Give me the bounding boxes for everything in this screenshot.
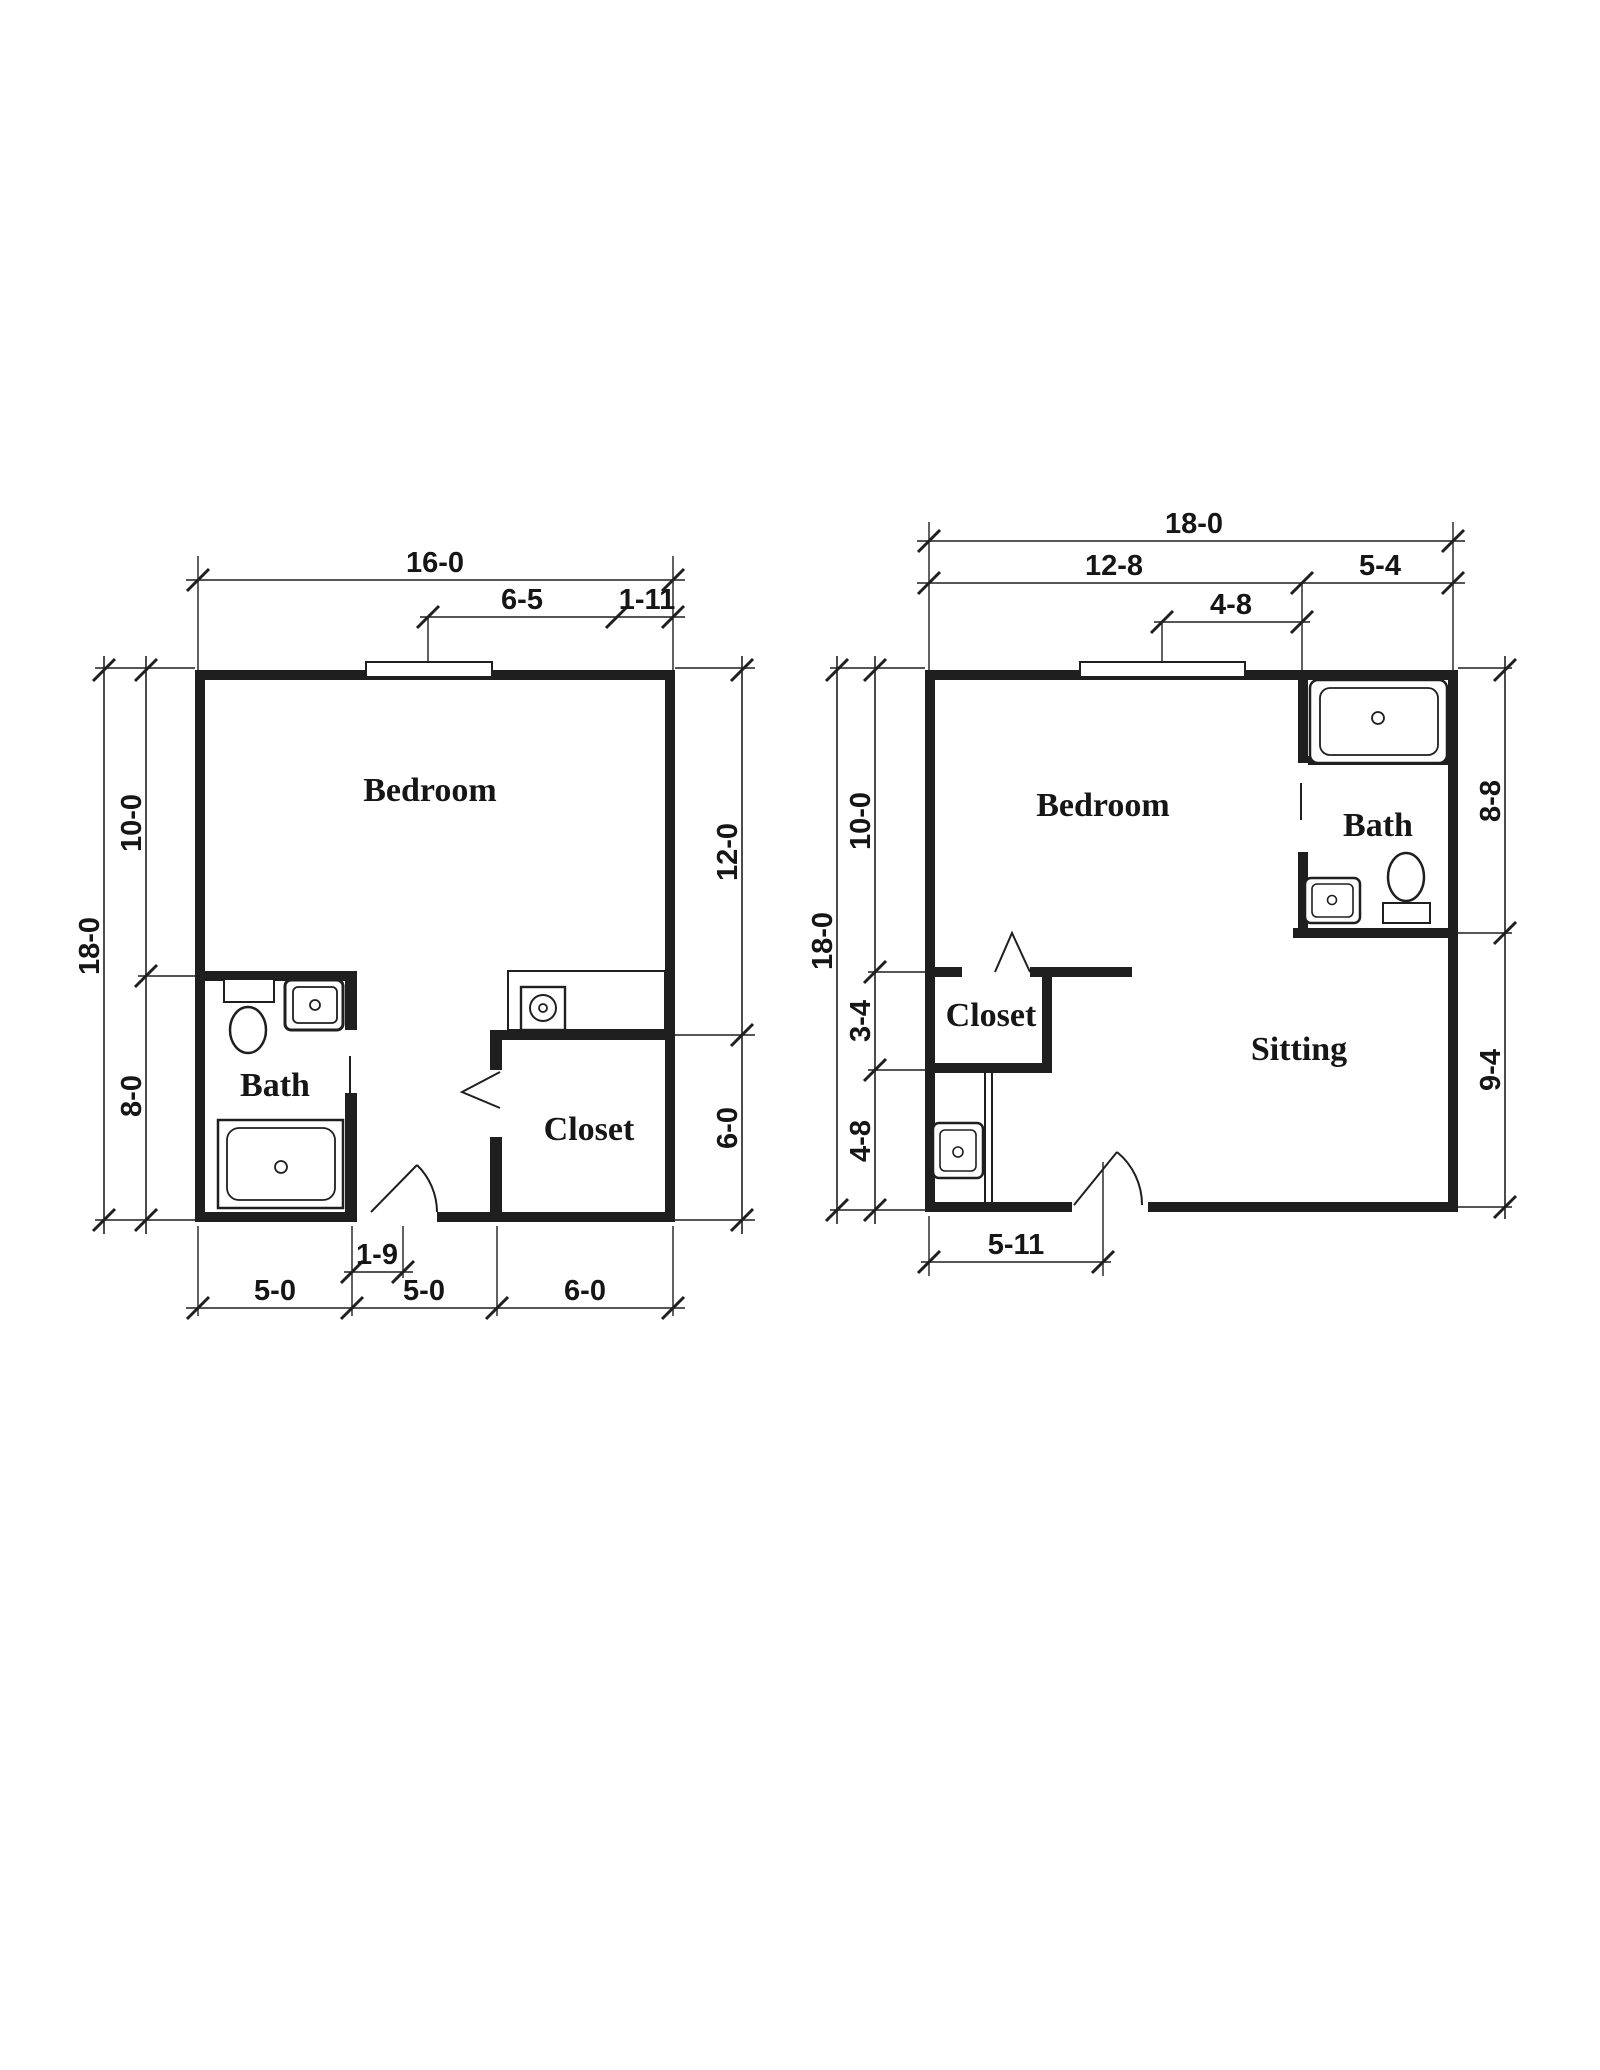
toilet-fixture bbox=[1383, 853, 1430, 923]
svg-text:8-8: 8-8 bbox=[1475, 780, 1507, 822]
thin-partition bbox=[985, 1073, 992, 1202]
floor-plan-page: Bedroom Bath Closet 16-0 6-5 1-11 18-0 bbox=[0, 0, 1600, 2070]
left-plan-top-dims: 16-0 6-5 1-11 bbox=[186, 547, 685, 670]
svg-text:18-0: 18-0 bbox=[1165, 508, 1223, 540]
left-plan-bottom-dims: 1-9 5-0 5-0 6-0 bbox=[186, 1226, 685, 1319]
svg-text:5-11: 5-11 bbox=[988, 1229, 1044, 1261]
svg-text:18-0: 18-0 bbox=[807, 912, 839, 970]
left-bedroom-label: Bedroom bbox=[363, 772, 496, 809]
svg-text:16-0: 16-0 bbox=[406, 547, 464, 579]
right-plan-top-dims: 18-0 12-8 5-4 4-8 bbox=[917, 508, 1465, 670]
left-plan-left-dims: 18-0 10-0 8-0 bbox=[74, 656, 195, 1234]
closet-door-swing bbox=[462, 1072, 500, 1108]
toilet-fixture bbox=[224, 979, 274, 1053]
washer-fixture bbox=[508, 971, 665, 1030]
svg-text:9-4: 9-4 bbox=[1475, 1049, 1507, 1091]
left-plan: Bedroom Bath Closet 16-0 6-5 1-11 18-0 bbox=[74, 547, 755, 1319]
svg-text:12-0: 12-0 bbox=[712, 823, 744, 881]
right-bedroom-label: Bedroom bbox=[1036, 787, 1169, 824]
tub-fixture bbox=[218, 1120, 343, 1208]
svg-text:18-0: 18-0 bbox=[74, 917, 106, 975]
right-plan-right-dims: 8-8 9-4 bbox=[1458, 656, 1516, 1219]
svg-text:12-8: 12-8 bbox=[1085, 550, 1143, 582]
svg-text:4-8: 4-8 bbox=[845, 1120, 877, 1162]
svg-text:6-5: 6-5 bbox=[501, 584, 543, 616]
right-plan: Bedroom Bath Closet Sitting 18-0 12-8 5-… bbox=[807, 508, 1516, 1276]
svg-text:10-0: 10-0 bbox=[116, 794, 148, 852]
vanity-sink-fixture bbox=[933, 1123, 983, 1178]
window bbox=[366, 662, 492, 677]
svg-text:5-0: 5-0 bbox=[254, 1275, 296, 1307]
left-plan-right-dims: 12-0 6-0 bbox=[675, 656, 755, 1234]
right-closet-label: Closet bbox=[946, 997, 1037, 1034]
closet-door-swing bbox=[995, 933, 1030, 972]
right-plan-left-dims: 18-0 10-0 3-4 4-8 bbox=[807, 656, 925, 1224]
right-sitting-label: Sitting bbox=[1251, 1031, 1347, 1068]
entry-door-swing bbox=[1074, 1152, 1142, 1205]
window bbox=[1080, 662, 1245, 677]
floor-plan-drawing: Bedroom Bath Closet 16-0 6-5 1-11 18-0 bbox=[0, 0, 1600, 2070]
left-closet-label: Closet bbox=[544, 1111, 635, 1148]
svg-text:8-0: 8-0 bbox=[116, 1075, 148, 1117]
svg-text:1-9: 1-9 bbox=[356, 1239, 398, 1271]
svg-text:5-0: 5-0 bbox=[403, 1275, 445, 1307]
svg-text:6-0: 6-0 bbox=[564, 1275, 606, 1307]
svg-text:4-8: 4-8 bbox=[1210, 589, 1252, 621]
sink-fixture bbox=[1305, 878, 1360, 923]
sink-fixture bbox=[285, 980, 343, 1030]
tub-fixture bbox=[1310, 680, 1447, 763]
svg-text:6-0: 6-0 bbox=[712, 1107, 744, 1149]
svg-text:5-4: 5-4 bbox=[1359, 550, 1401, 582]
svg-text:3-4: 3-4 bbox=[845, 1000, 877, 1042]
entry-door-swing bbox=[371, 1165, 437, 1212]
svg-text:10-0: 10-0 bbox=[845, 792, 877, 850]
left-bath-label: Bath bbox=[240, 1067, 310, 1104]
svg-text:1-11: 1-11 bbox=[619, 584, 675, 616]
right-bath-label: Bath bbox=[1343, 807, 1413, 844]
